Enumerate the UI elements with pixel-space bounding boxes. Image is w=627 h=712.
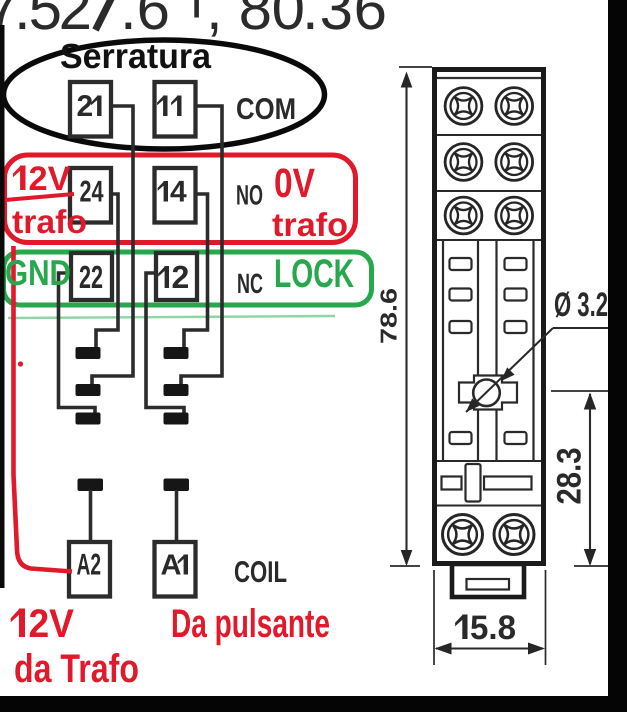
svg-text:A: A bbox=[161, 550, 182, 582]
svg-text:NO: NO bbox=[236, 180, 263, 211]
svg-text:trafo: trafo bbox=[272, 206, 348, 243]
svg-text:0V: 0V bbox=[274, 160, 316, 206]
svg-text:7.52: 7.52 bbox=[0, 0, 92, 42]
svg-text:da Trafo: da Trafo bbox=[14, 647, 139, 691]
svg-text:Da pulsante: Da pulsante bbox=[171, 602, 330, 646]
svg-text:Serratura: Serratura bbox=[60, 37, 212, 76]
svg-text:trafo: trafo bbox=[12, 203, 87, 240]
svg-text:A2: A2 bbox=[77, 549, 102, 582]
svg-text:78.6: 78.6 bbox=[376, 288, 402, 344]
svg-text:COM: COM bbox=[236, 93, 296, 126]
svg-text:4: 4 bbox=[170, 176, 187, 209]
svg-text:NC: NC bbox=[237, 268, 263, 299]
svg-text:5.8: 5.8 bbox=[470, 609, 516, 647]
svg-text:22: 22 bbox=[79, 259, 103, 295]
svg-text:2: 2 bbox=[77, 90, 94, 123]
svg-text:2V: 2V bbox=[29, 160, 71, 198]
svg-text:.6,80.36: .6,80.36 bbox=[120, 0, 387, 42]
svg-text:2: 2 bbox=[172, 259, 190, 295]
svg-text:28.3: 28.3 bbox=[551, 448, 589, 505]
svg-text:2V: 2V bbox=[29, 602, 75, 646]
svg-text:LOCK: LOCK bbox=[274, 252, 354, 296]
svg-text:GND: GND bbox=[5, 252, 71, 293]
svg-text:COIL: COIL bbox=[234, 556, 287, 589]
svg-text:Ø 3.2: Ø 3.2 bbox=[554, 286, 608, 324]
